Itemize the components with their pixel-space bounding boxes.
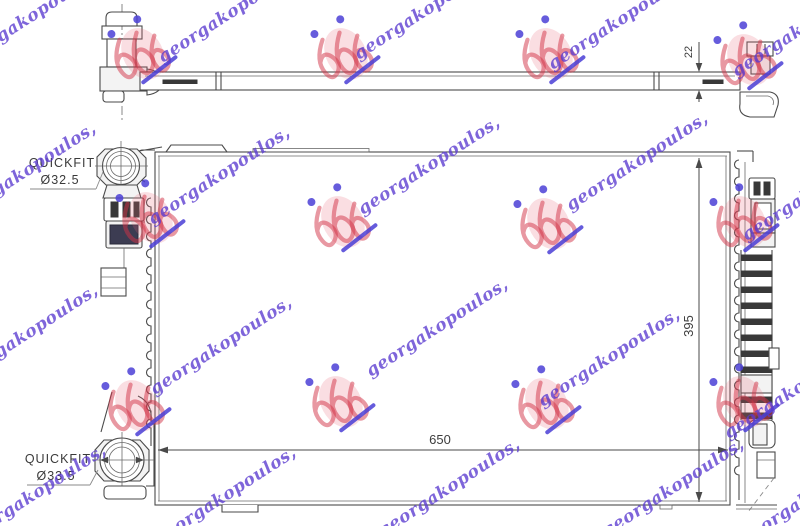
watermark-script-text: georgakopoulos, <box>0 118 100 225</box>
watermark-script-text: georgakopoulos, <box>154 0 304 67</box>
dim-depth-text: 22 <box>683 46 695 58</box>
watermark-script-text: georgakopoulos, <box>0 280 102 387</box>
dim-height-text: 395 <box>681 315 696 337</box>
dim-width-text: 650 <box>429 432 451 447</box>
watermark-script-text: georgakopoulos, <box>0 0 104 71</box>
radiator-drawing-page: POLOVNI AUTOMOBILI 22 <box>0 0 800 526</box>
quickfit-top-line2: Ø32.5 <box>40 173 79 187</box>
watermark-script-text: georgakopoulos, <box>544 0 694 74</box>
watermark-script-text: georgakopoulos, <box>350 0 500 64</box>
radiator-technical-drawing: POLOVNI AUTOMOBILI 22 <box>0 0 800 526</box>
